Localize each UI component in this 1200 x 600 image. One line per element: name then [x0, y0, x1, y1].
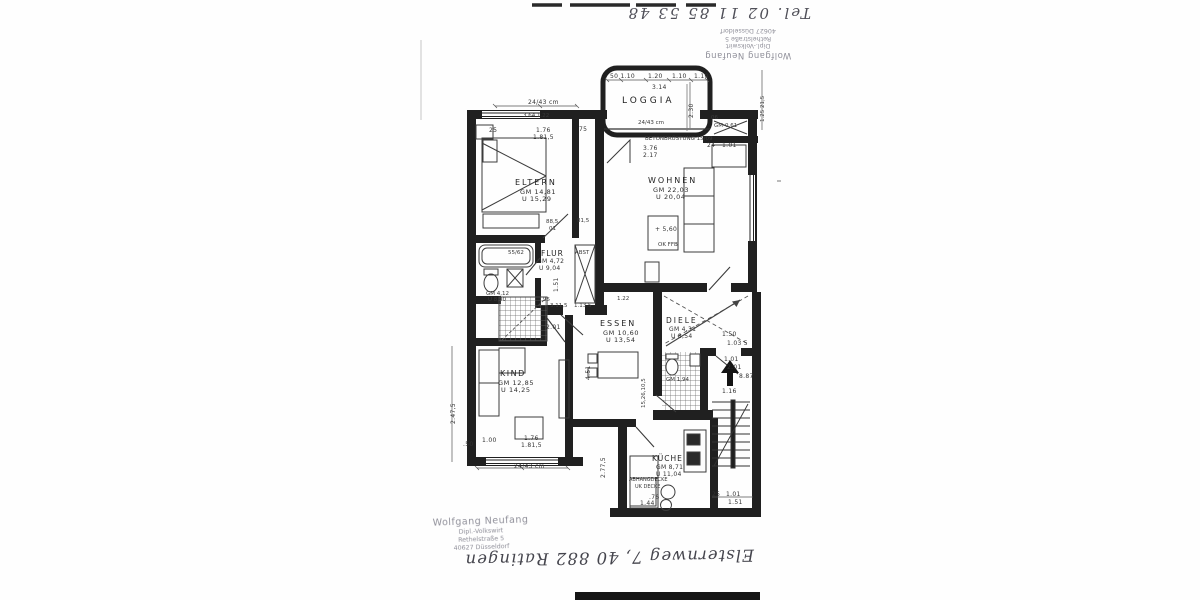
dim-label: 3.11,5 — [550, 303, 568, 309]
dim-label: 2.47,5 — [450, 403, 457, 424]
dim-label: 8.87 — [739, 373, 754, 380]
annotation-ok-ffb: OK FFB — [658, 242, 678, 248]
floorplan-labels: LOGGIA ELTERN GM 14,81 U 15,29 WOHNEN GM… — [0, 0, 1200, 600]
room-label-kind: KIND — [500, 369, 526, 378]
annotation-level: + 5,60 — [655, 226, 677, 233]
stamp-name: Wolfgang Neufang — [688, 50, 808, 61]
room-area-flur-u: U 9,04 — [539, 265, 560, 272]
dim-label: 2.30 — [688, 103, 695, 118]
stamp-top: Wolfgang Neufang Dipl.-Volkswirt Rethels… — [688, 26, 808, 60]
annotation-betonbruestung: BETONBRÜSTUNG 15/09 — [645, 136, 713, 142]
dim-label: 3.76 — [643, 145, 658, 152]
dim-label: 1.51 — [728, 499, 743, 506]
dim-label: .76 — [649, 494, 659, 501]
dim-label: 1.76 — [536, 127, 551, 134]
handwritten-phone-number: Tel. 02 11 85 53 48 — [626, 4, 811, 22]
dim-label: 1.51 — [553, 277, 560, 292]
dim-label: 1.81,5 — [521, 442, 542, 449]
dim-label: 1.00 — [482, 437, 497, 444]
scanned-floorplan-page: LOGGIA ELTERN GM 14,81 U 15,29 WOHNEN GM… — [0, 0, 1200, 600]
stamp-title: Dipl.-Volkswirt — [688, 42, 808, 50]
room-area-diele-u: U 8,54 — [671, 333, 692, 340]
dim-label: 25 — [489, 127, 497, 134]
dim-label: 1.10 — [672, 73, 687, 80]
dim-label: 1.10 — [694, 73, 709, 80]
room-area-flur-gm: GM 4,72 — [537, 258, 564, 265]
handwritten-address: Elsternweg 7, 40 882 Ratingen — [486, 546, 754, 570]
dim-label: 24/43 cm — [514, 463, 545, 470]
dim-label: 3.14 — [652, 84, 667, 91]
dim-label: 88,5 — [546, 219, 558, 225]
room-label-wohnen: WOHNEN — [648, 176, 697, 185]
dim-label: 1.25 21,5 — [760, 96, 766, 122]
dim-label: 1.44 — [640, 500, 655, 507]
dim-label: 2.01 — [546, 324, 561, 331]
dim-label: 1.01 — [726, 491, 741, 498]
dim-label: 1.01 — [722, 142, 737, 149]
room-label-kueche: KÜCHE — [652, 454, 683, 463]
room-area-diele-gm: GM 4,31 — [669, 326, 696, 333]
room-area-kind-u: U 14,25 — [501, 386, 531, 394]
dim-label: 2.77,5 — [600, 457, 607, 478]
stamp-bottom: Wolfgang Neufang Dipl.-Volkswirt Rethels… — [425, 514, 536, 553]
room-area-abst-klein-gm: GM-0,61 — [714, 123, 737, 129]
room-area-essen-u: U 13,54 — [606, 336, 636, 344]
dim-label: 25 — [712, 491, 720, 498]
room-label-diele: DIELE — [666, 316, 698, 325]
room-label-essen: ESSEN — [600, 319, 636, 328]
dim-label: 50 1.10 — [610, 73, 635, 80]
dim-label: 1.76 — [524, 435, 539, 442]
annotation-uk-decke: UK DECKE — [635, 484, 660, 490]
dim-label: 1.50 — [722, 331, 737, 338]
dim-label: 81,5 — [577, 218, 589, 224]
room-label-abst: ABST — [575, 250, 589, 256]
room-area-kueche-gm: GM 8,71 — [656, 464, 683, 471]
room-area-eltern-u: U 15,29 — [522, 195, 552, 203]
room-area-wc-gm: GM 1,94 — [666, 377, 689, 383]
dim-label: 24 — [707, 142, 715, 149]
room-label-loggia: LOGGIA — [622, 96, 675, 106]
dim-label: 2.17 — [643, 152, 658, 159]
annotation-abhangdecke: ABHANGDECKE — [629, 477, 668, 483]
dim-label: 75 — [579, 126, 587, 133]
dim-label: 3.64 1.22 — [523, 113, 549, 119]
dim-label: 55/62 — [508, 250, 524, 256]
stamp-street: Rethelstraße 5 — [688, 34, 808, 42]
room-area-wohnen-u: U 20,04 — [656, 193, 686, 201]
stamp-city: 40627 Düsseldorf — [688, 26, 808, 34]
dim-label: 1.03 5 — [727, 340, 748, 347]
dim-label: 1.13,5 — [574, 303, 592, 309]
room-label-abst-klein-no: 06 — [711, 115, 718, 121]
dim-label: 4.51 — [585, 365, 592, 380]
dim-label: .50 — [463, 441, 473, 448]
dim-label: 24/43 cm — [638, 120, 664, 126]
dim-label: 1.16 — [722, 388, 737, 395]
dim-label: 1.81,5 — [533, 134, 554, 141]
dim-label: 95 — [543, 297, 550, 303]
dim-label: 1.22 — [617, 296, 629, 302]
dim-label: 1.01 — [724, 356, 739, 363]
dim-label: 1.20 — [648, 73, 663, 80]
dim-label: 24/43 cm — [528, 99, 559, 106]
dim-label: 2.01 — [727, 364, 742, 371]
dim-label: 01 — [549, 226, 556, 232]
dim-label: 15,26,10,5 — [641, 378, 647, 408]
room-label-eltern: ELTERN — [515, 178, 557, 187]
room-area-bad-u: U 8,90 — [488, 297, 506, 303]
room-label-flur: FLUR — [541, 249, 564, 258]
